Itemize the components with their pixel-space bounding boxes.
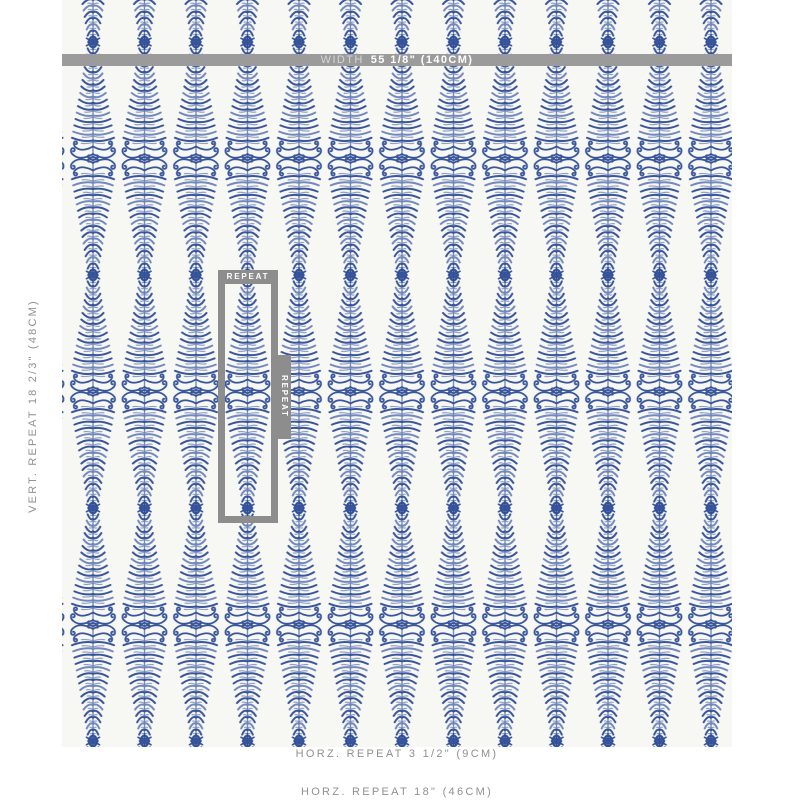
horizontal-repeat-full-label: HORZ. REPEAT 18" (46CM) xyxy=(301,786,493,798)
horizontal-repeat-motif-label: HORZ. REPEAT 3 1/2" (9CM) xyxy=(296,748,499,760)
width-value: 55 1/8" (140CM) xyxy=(371,54,474,66)
repeat-outline-box: REPEAT REPEAT xyxy=(218,270,278,523)
fabric-swatch: WIDTH 55 1/8" (140CM) REPEAT REPEAT xyxy=(62,0,732,747)
width-measure-bar: WIDTH 55 1/8" (140CM) xyxy=(62,54,732,66)
width-label: WIDTH xyxy=(321,54,364,66)
vertical-repeat-label: VERT. REPEAT 18 2/3" (48CM) xyxy=(27,299,39,513)
repeat-box-side-label: REPEAT xyxy=(277,355,291,439)
repeat-box-top-label: REPEAT xyxy=(218,270,278,284)
fabric-pattern-svg xyxy=(62,0,732,747)
